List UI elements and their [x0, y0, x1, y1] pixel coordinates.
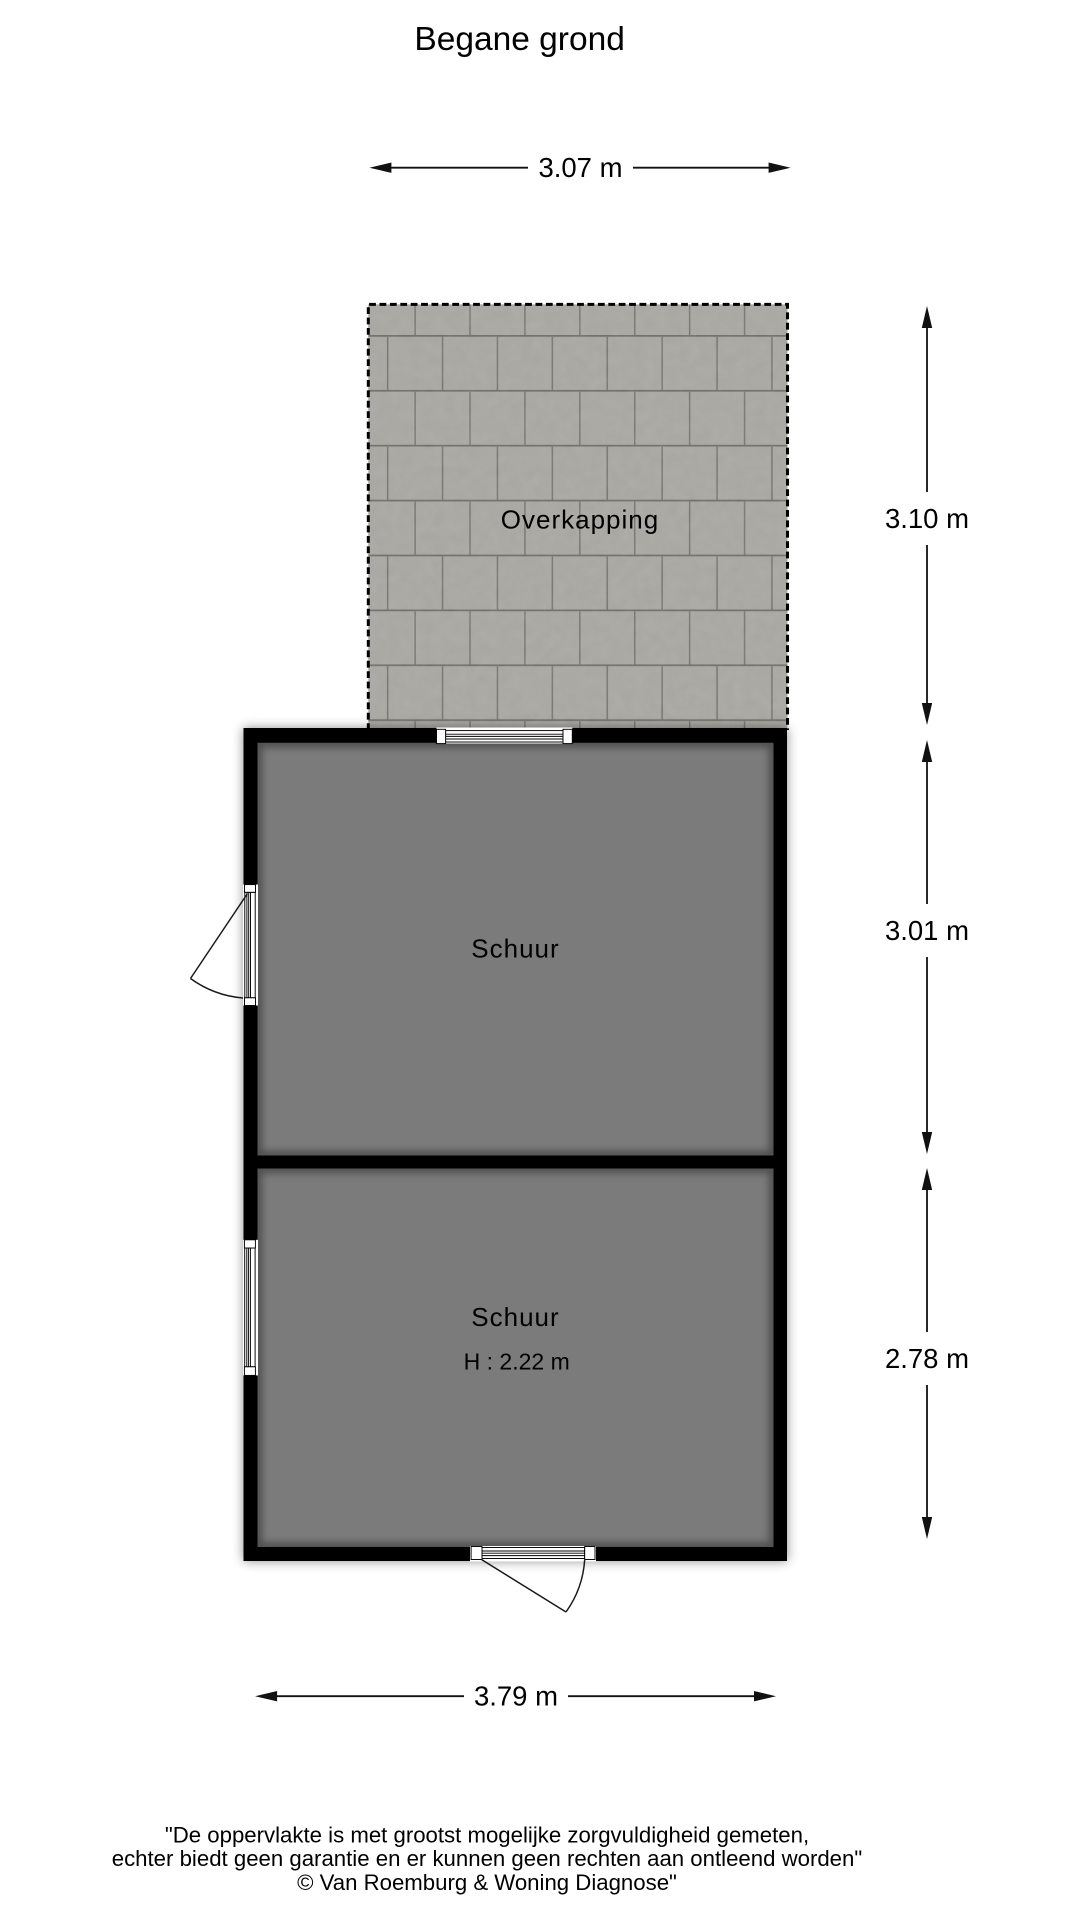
svg-text:Schuur: Schuur [471, 1302, 559, 1332]
svg-text:3.01 m: 3.01 m [885, 915, 969, 946]
svg-text:3.10 m: 3.10 m [885, 503, 969, 534]
svg-text:© Van Roemburg & Woning Diagno: © Van Roemburg & Woning Diagnose" [297, 1870, 677, 1895]
svg-text:3.07 m: 3.07 m [538, 152, 622, 183]
svg-text:echter biedt geen garantie en: echter biedt geen garantie en er kunnen … [112, 1846, 863, 1871]
svg-text:Overkapping: Overkapping [501, 505, 659, 535]
svg-text:Schuur: Schuur [471, 934, 559, 964]
svg-text:2.78 m: 2.78 m [885, 1343, 969, 1374]
svg-text:3.79 m: 3.79 m [474, 1681, 558, 1712]
svg-text:"De oppervlakte is met grootst: "De oppervlakte is met grootst mogelijke… [165, 1822, 809, 1847]
svg-text:Begane grond: Begane grond [414, 21, 625, 58]
svg-text:H : 2.22 m: H : 2.22 m [464, 1349, 570, 1375]
